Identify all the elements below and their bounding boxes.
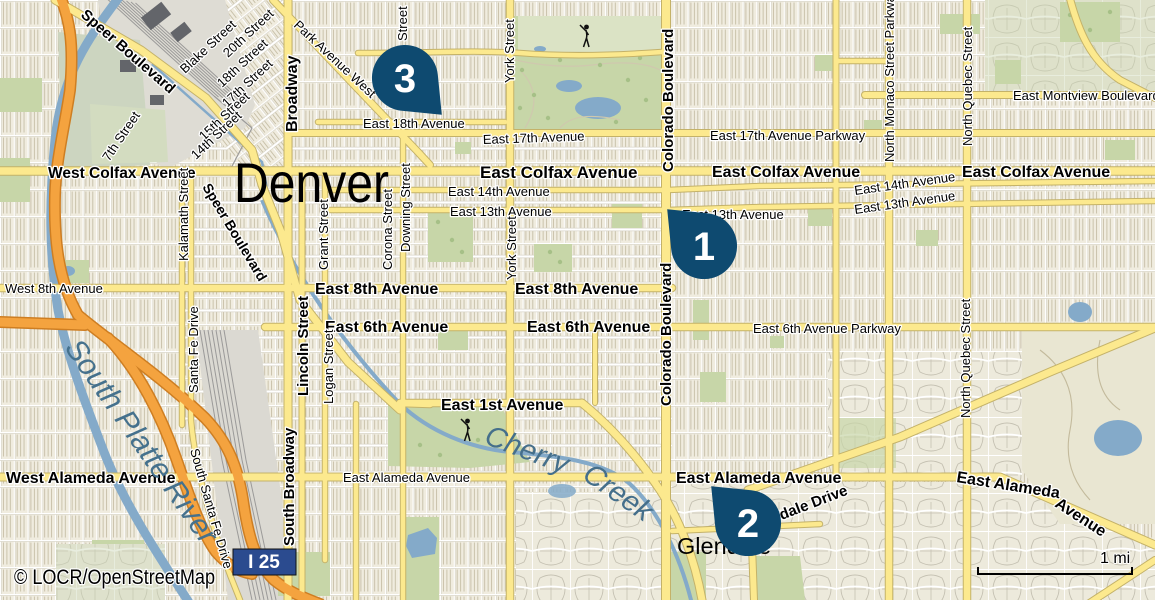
svg-text:York Street: York Street [504,216,519,280]
svg-text:East 8th Avenue: East 8th Avenue [515,281,638,298]
svg-text:Logan Street: Logan Street [321,329,336,404]
svg-text:West Colfax Avenue: West Colfax Avenue [48,165,196,182]
svg-text:1: 1 [693,225,715,269]
svg-text:North Monaco Street Parkway: North Monaco Street Parkway [882,0,897,162]
svg-text:North Quebec Street: North Quebec Street [960,26,975,146]
svg-text:West 8th Avenue: West 8th Avenue [5,281,103,296]
svg-text:East Colfax Avenue: East Colfax Avenue [962,164,1110,181]
svg-text:East 6th Avenue Parkway: East 6th Avenue Parkway [753,321,901,336]
svg-text:I 25: I 25 [248,552,280,573]
svg-text:South Broadway: South Broadway [281,427,298,546]
svg-text:York Street: York Street [502,19,517,83]
svg-text:Denver: Denver [234,151,389,214]
svg-text:East Colfax Avenue: East Colfax Avenue [480,163,637,182]
svg-text:Santa Fe Drive: Santa Fe Drive [186,306,201,393]
svg-text:East 8th Avenue: East 8th Avenue [315,281,438,298]
svg-text:Broadway: Broadway [284,55,301,132]
svg-text:East 17th Avenue Parkway: East 17th Avenue Parkway [710,128,866,143]
svg-text:East 14th Avenue: East 14th Avenue [448,184,550,199]
svg-text:East 1st Avenue: East 1st Avenue [441,397,564,414]
svg-text:Colorado Boulevard: Colorado Boulevard [658,263,675,406]
svg-text:East Montview Boulevard: East Montview Boulevard [1013,88,1155,103]
svg-text:1 mi: 1 mi [1100,550,1130,567]
svg-text:East 18th Avenue: East 18th Avenue [363,116,465,131]
svg-text:East Alameda Avenue: East Alameda Avenue [343,470,470,485]
svg-text:Street: Street [395,6,410,41]
svg-text:© LOCR/OpenStreetMap: © LOCR/OpenStreetMap [14,566,215,589]
svg-text:Lincoln Street: Lincoln Street [295,296,312,396]
svg-text:East 6th Avenue: East 6th Avenue [527,319,650,336]
svg-text:East Alameda Avenue: East Alameda Avenue [676,470,842,487]
svg-text:Kalamath Street: Kalamath Street [176,167,191,261]
svg-text:East 13th Avenue: East 13th Avenue [450,204,552,219]
svg-text:Downing Street: Downing Street [398,163,413,252]
svg-text:East 6th Avenue: East 6th Avenue [325,319,448,336]
svg-text:3: 3 [394,57,416,101]
svg-text:North Quebec Street: North Quebec Street [958,298,973,418]
svg-text:Colorado Boulevard: Colorado Boulevard [660,29,677,172]
svg-text:East Colfax Avenue: East Colfax Avenue [712,164,860,181]
svg-text:2: 2 [737,502,759,546]
